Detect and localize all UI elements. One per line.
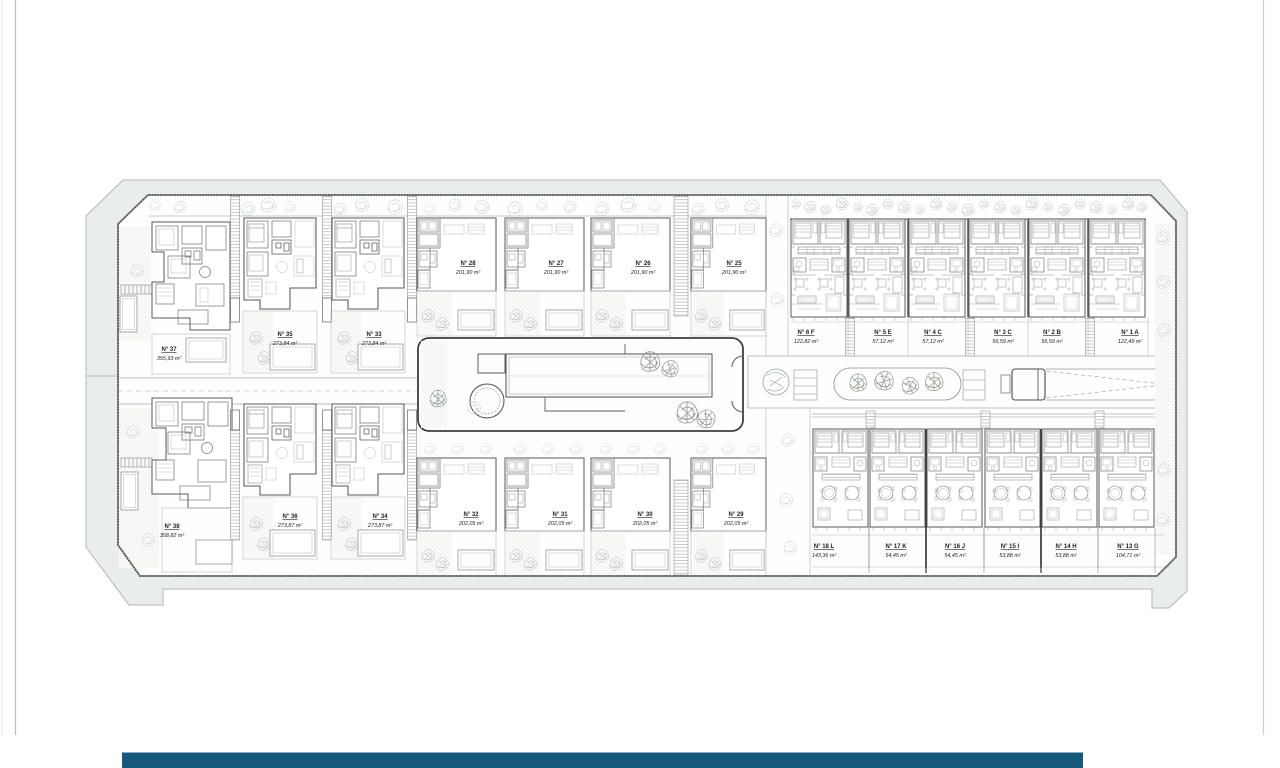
svg-text:N° 17 K: N° 17 K — [885, 544, 907, 550]
svg-text:N° 13 G: N° 13 G — [1117, 544, 1139, 550]
svg-text:N° 32: N° 32 — [463, 512, 479, 518]
svg-text:143,36 m²: 143,36 m² — [812, 553, 836, 559]
svg-text:N° 16 J: N° 16 J — [945, 544, 965, 550]
svg-text:N° 31: N° 31 — [552, 512, 568, 518]
svg-text:56,59 m²: 56,59 m² — [992, 339, 1013, 345]
svg-text:N° 29: N° 29 — [728, 512, 744, 518]
svg-text:273,84 m²: 273,84 m² — [272, 341, 297, 347]
svg-text:N° 38: N° 38 — [164, 524, 180, 530]
svg-text:N° 18 L: N° 18 L — [814, 544, 835, 550]
svg-text:57,12 m²: 57,12 m² — [922, 339, 943, 345]
svg-text:N° 30: N° 30 — [637, 512, 653, 518]
svg-text:202,05 m²: 202,05 m² — [632, 521, 657, 527]
svg-text:N° 4 C: N° 4 C — [924, 330, 942, 336]
svg-text:N° 5 E: N° 5 E — [874, 330, 891, 336]
svg-text:N° 15 I: N° 15 I — [1001, 544, 1020, 550]
svg-text:202,05 m²: 202,05 m² — [723, 521, 748, 527]
svg-text:358,82 m²: 358,82 m² — [160, 533, 184, 539]
svg-text:56,59 m²: 56,59 m² — [1041, 339, 1062, 345]
svg-text:201,90 m²: 201,90 m² — [455, 270, 480, 276]
svg-text:N° 14 H: N° 14 H — [1055, 544, 1076, 550]
svg-text:N° 6 F: N° 6 F — [797, 330, 814, 336]
svg-text:53,88 m²: 53,88 m² — [1055, 553, 1076, 559]
svg-text:122,82 m²: 122,82 m² — [794, 339, 818, 345]
svg-text:273,87 m²: 273,87 m² — [367, 523, 392, 529]
svg-text:54,45 m²: 54,45 m² — [944, 553, 965, 559]
svg-text:N° 28: N° 28 — [460, 261, 476, 267]
svg-text:N° 35: N° 35 — [277, 332, 293, 338]
svg-text:N° 25: N° 25 — [726, 261, 742, 267]
svg-text:N° 26: N° 26 — [635, 261, 651, 267]
svg-text:54,45 m²: 54,45 m² — [885, 553, 906, 559]
svg-text:N° 2 B: N° 2 B — [1043, 330, 1061, 336]
svg-text:273,84 m²: 273,84 m² — [361, 341, 386, 347]
svg-text:202,05 m²: 202,05 m² — [458, 521, 483, 527]
svg-text:201,90 m²: 201,90 m² — [721, 270, 746, 276]
svg-text:N° 3 C: N° 3 C — [994, 330, 1012, 336]
svg-text:355,93 m²: 355,93 m² — [157, 356, 181, 362]
svg-text:122,49 m²: 122,49 m² — [1118, 339, 1142, 345]
svg-text:N° 37: N° 37 — [161, 347, 177, 353]
svg-text:N° 34: N° 34 — [372, 514, 388, 520]
svg-text:N° 1 A: N° 1 A — [1121, 330, 1139, 336]
svg-text:N° 36: N° 36 — [282, 514, 298, 520]
svg-text:53,88 m²: 53,88 m² — [999, 553, 1020, 559]
svg-text:57,12 m²: 57,12 m² — [872, 339, 893, 345]
svg-text:273,87 m²: 273,87 m² — [277, 523, 302, 529]
svg-text:104,71 m²: 104,71 m² — [1116, 553, 1140, 559]
svg-text:N° 33: N° 33 — [366, 332, 382, 338]
svg-text:201,90 m²: 201,90 m² — [543, 270, 568, 276]
svg-text:201,90 m²: 201,90 m² — [630, 270, 655, 276]
svg-text:202,05 m²: 202,05 m² — [547, 521, 572, 527]
svg-text:N° 27: N° 27 — [548, 261, 564, 267]
